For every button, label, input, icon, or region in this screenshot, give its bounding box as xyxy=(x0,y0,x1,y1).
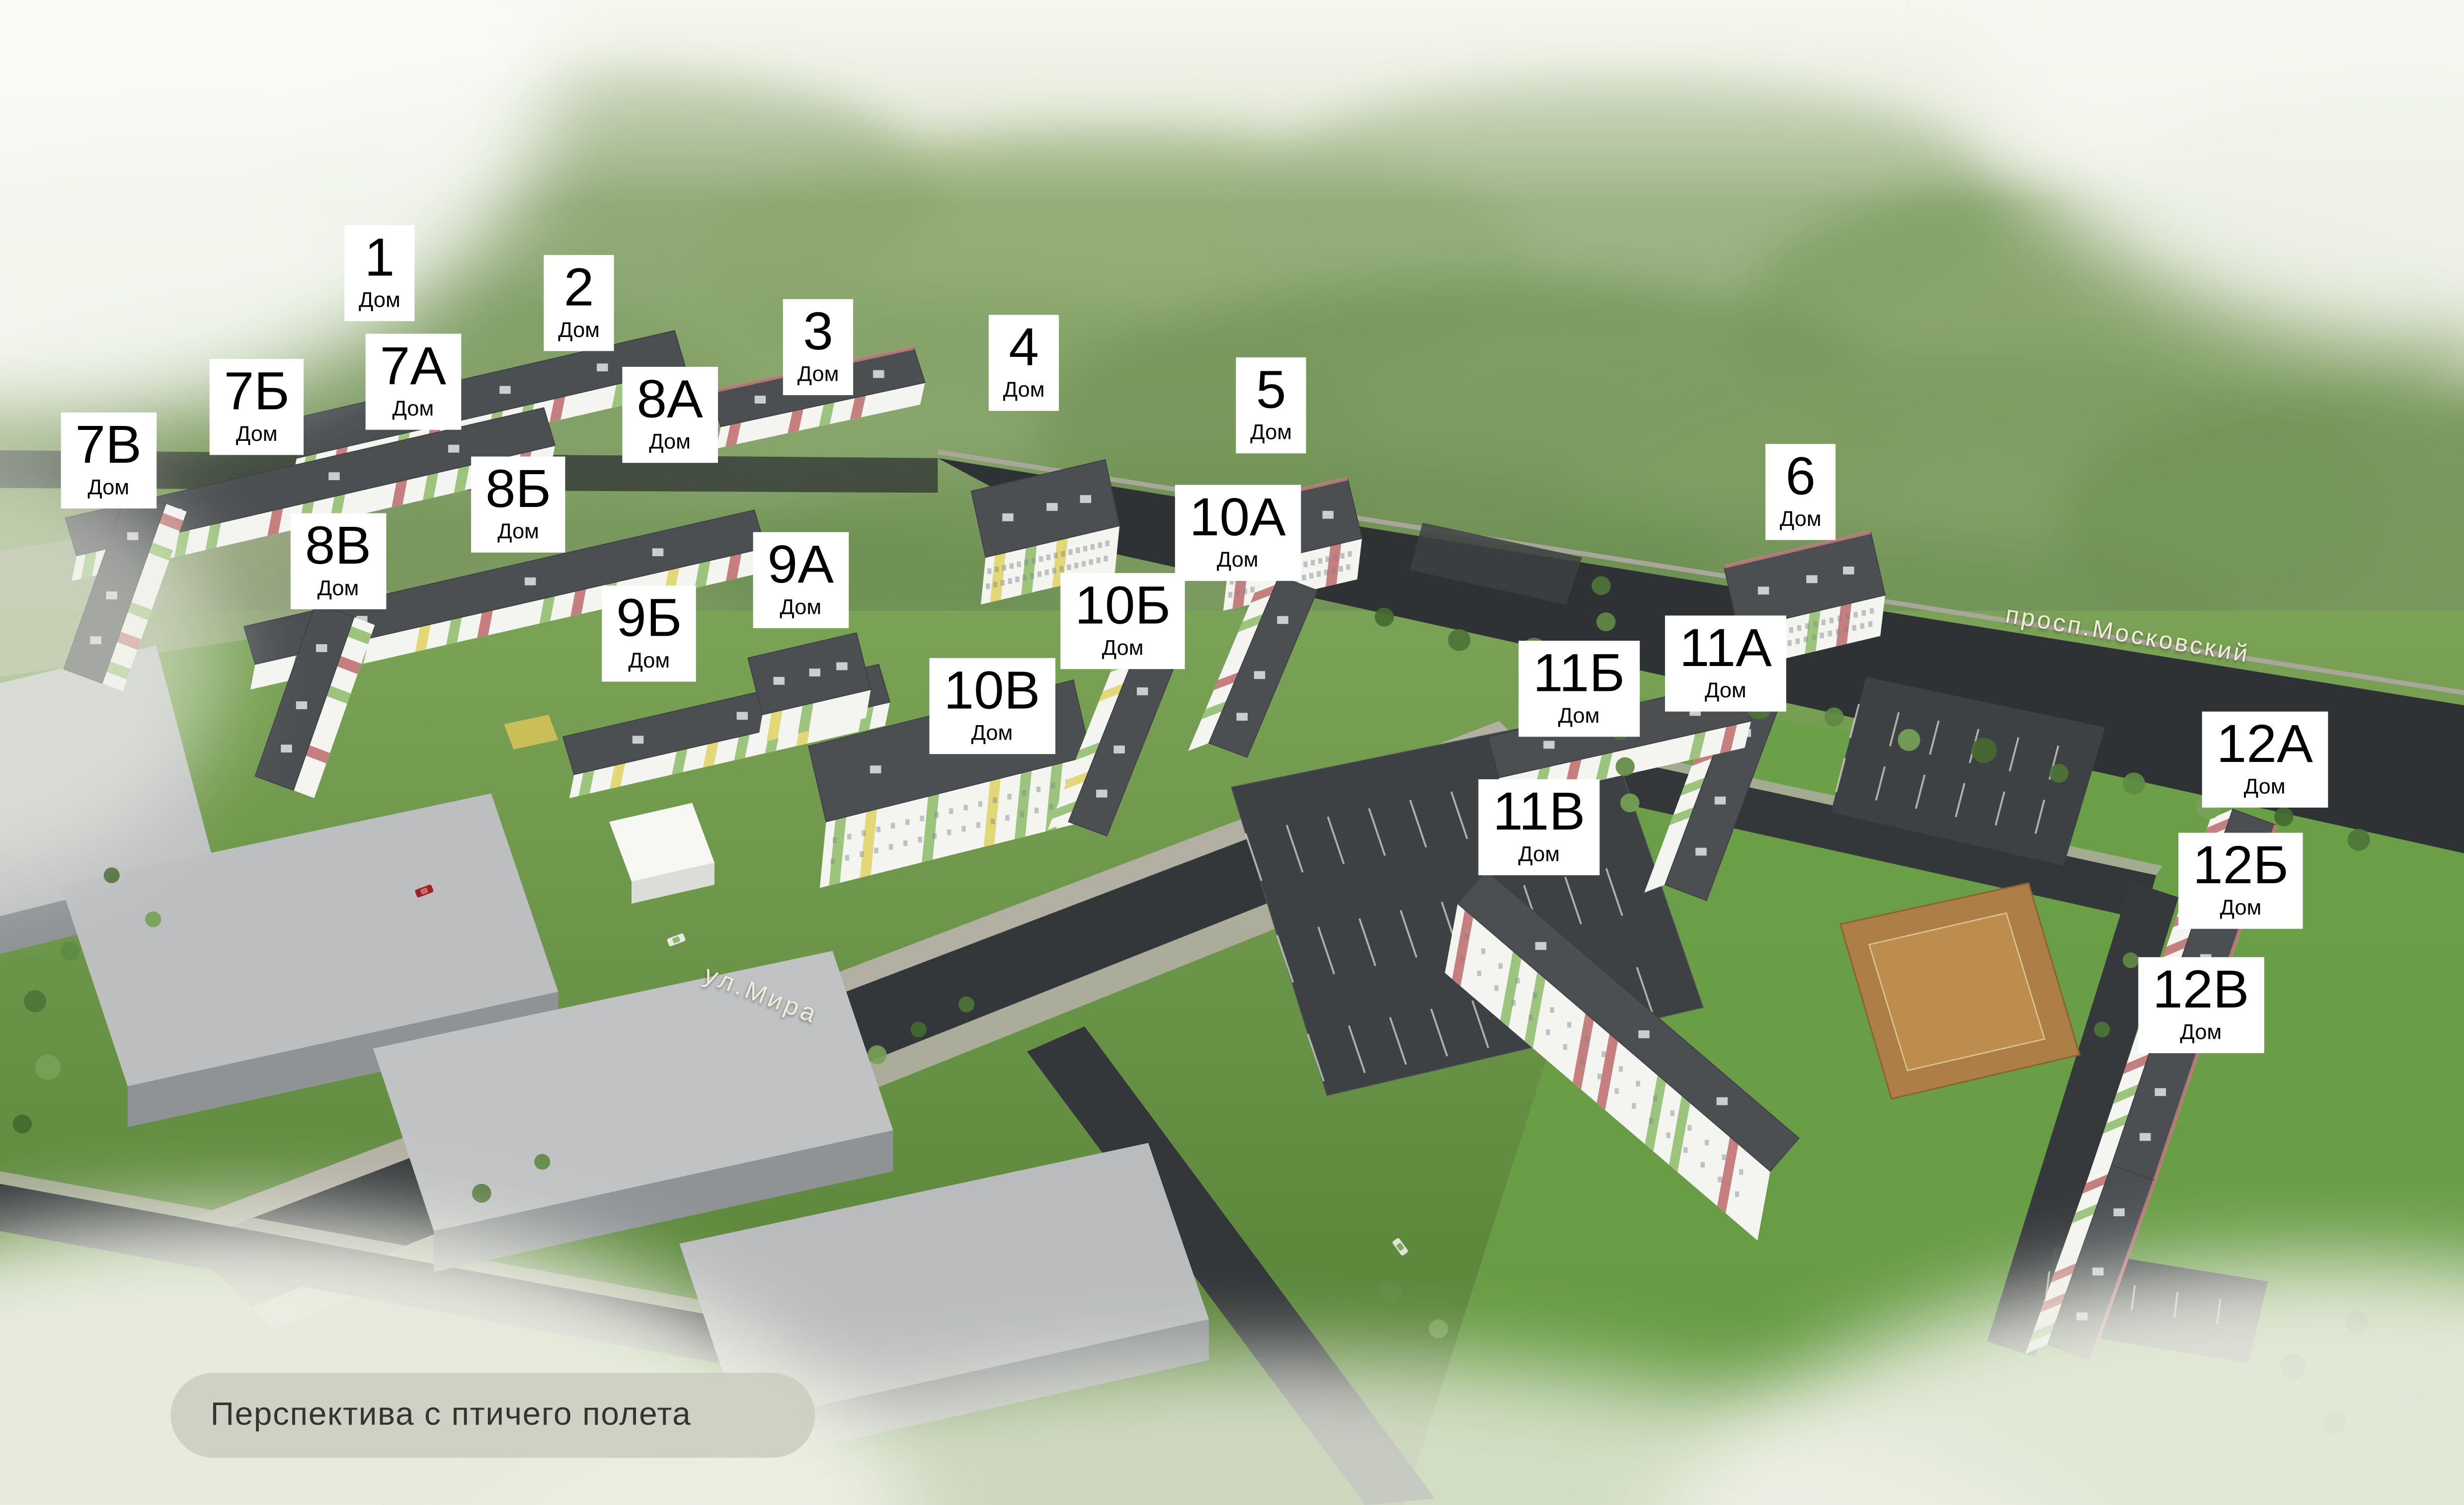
building-sublabel: Дом xyxy=(485,519,551,543)
building-label-12А: 12АДом xyxy=(2202,712,2327,808)
building-number: 11А xyxy=(1679,622,1772,676)
building-sublabel: Дом xyxy=(1780,506,1822,531)
building-label-9Б: 9БДом xyxy=(602,585,696,682)
building-sublabel: Дом xyxy=(1679,678,1772,702)
building-sublabel: Дом xyxy=(944,721,1040,745)
building-label-7В: 7ВДом xyxy=(61,413,156,509)
building-label-2: 2Дом xyxy=(544,255,614,351)
building-sublabel: Дом xyxy=(636,429,703,454)
building-number: 6 xyxy=(1780,450,1822,505)
building-label-11А: 11АДом xyxy=(1665,615,1786,712)
building-number: 8Б xyxy=(485,463,551,517)
building-labels: 1Дом2Дом3Дом4Дом5Дом6Дом7АДом7БДом7ВДом8… xyxy=(0,0,2464,1505)
building-number: 10Б xyxy=(1075,580,1171,634)
building-sublabel: Дом xyxy=(768,594,834,619)
building-label-1: 1Дом xyxy=(344,225,415,322)
building-sublabel: Дом xyxy=(1250,420,1292,444)
building-label-7А: 7АДом xyxy=(366,334,461,430)
building-label-6: 6Дом xyxy=(1765,444,1836,540)
building-label-5: 5Дом xyxy=(1236,357,1306,454)
building-number: 7В xyxy=(76,419,142,474)
building-number: 1 xyxy=(359,232,400,286)
building-sublabel: Дом xyxy=(224,421,290,446)
building-label-10В: 10ВДом xyxy=(929,658,1054,754)
building-label-10Б: 10БДом xyxy=(1060,573,1185,669)
building-sublabel: Дом xyxy=(76,475,142,500)
building-label-12В: 12ВДом xyxy=(2138,957,2263,1054)
building-label-11В: 11ВДом xyxy=(1478,779,1599,876)
building-number: 10В xyxy=(944,665,1040,719)
caption: Перспектива с птичего полета xyxy=(170,1373,815,1458)
building-sublabel: Дом xyxy=(1533,703,1625,728)
building-number: 9Б xyxy=(616,592,682,647)
building-label-8В: 8ВДом xyxy=(291,513,386,610)
building-sublabel: Дом xyxy=(797,361,839,386)
building-number: 3 xyxy=(797,305,839,360)
building-number: 11В xyxy=(1493,786,1585,840)
building-number: 5 xyxy=(1250,364,1292,418)
building-number: 8А xyxy=(636,373,703,428)
building-number: 7Б xyxy=(224,365,290,420)
masterplan-render: 1Дом2Дом3Дом4Дом5Дом6Дом7АДом7БДом7ВДом8… xyxy=(0,0,2464,1505)
building-number: 10А xyxy=(1190,491,1286,546)
building-sublabel: Дом xyxy=(380,396,447,420)
building-number: 2 xyxy=(558,261,600,316)
building-label-7Б: 7БДом xyxy=(210,359,304,455)
building-number: 12А xyxy=(2217,718,2313,772)
building-label-11Б: 11БДом xyxy=(1518,641,1639,737)
building-label-12Б: 12БДом xyxy=(2178,833,2303,929)
building-sublabel: Дом xyxy=(2193,895,2289,920)
building-number: 12Б xyxy=(2193,839,2289,894)
building-label-8Б: 8БДом xyxy=(471,457,565,553)
building-sublabel: Дом xyxy=(2217,774,2313,798)
building-sublabel: Дом xyxy=(1190,547,1286,572)
building-sublabel: Дом xyxy=(2152,1019,2249,1044)
building-number: 9А xyxy=(768,538,834,593)
building-sublabel: Дом xyxy=(558,318,600,342)
building-label-3: 3Дом xyxy=(783,299,854,396)
building-label-9А: 9АДом xyxy=(753,532,848,629)
building-sublabel: Дом xyxy=(1003,377,1045,402)
building-sublabel: Дом xyxy=(359,288,400,312)
building-number: 8В xyxy=(305,519,372,574)
building-sublabel: Дом xyxy=(1493,841,1585,866)
building-label-4: 4Дом xyxy=(989,315,1059,411)
building-number: 7А xyxy=(380,340,447,395)
building-number: 12В xyxy=(2152,963,2249,1018)
building-sublabel: Дом xyxy=(1075,636,1171,660)
building-sublabel: Дом xyxy=(616,648,682,672)
building-sublabel: Дом xyxy=(305,576,372,600)
building-number: 11Б xyxy=(1533,647,1625,702)
building-label-10А: 10АДом xyxy=(1175,485,1300,582)
caption-text: Перспектива с птичего полета xyxy=(211,1396,692,1434)
building-number: 4 xyxy=(1003,321,1045,376)
building-label-8А: 8АДом xyxy=(622,367,717,463)
